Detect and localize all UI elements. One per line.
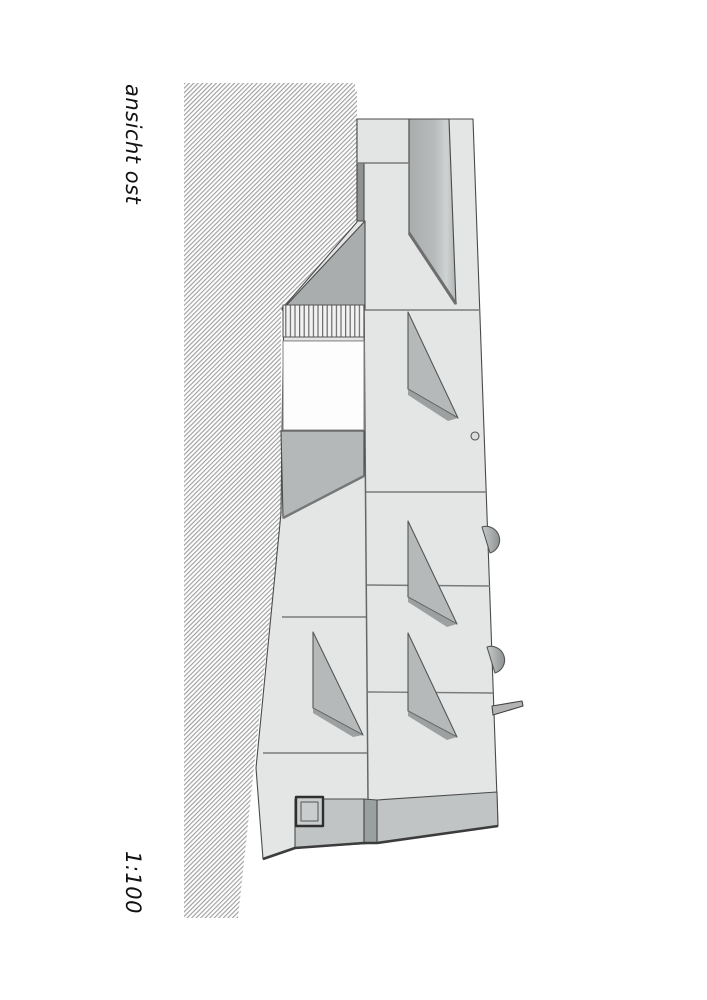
- terrain-edge-shadow-strip: [357, 163, 364, 221]
- basement-window-frame: [296, 797, 323, 826]
- loggia-opening: [283, 341, 364, 430]
- facade-top-panel: [357, 119, 409, 163]
- door-handle: [471, 432, 479, 440]
- elevation-canvas: [0, 0, 707, 1000]
- elevation-drawing-page: ansicht ost 1:100: [0, 0, 707, 1000]
- protruding-pole: [492, 701, 523, 715]
- plinth-downpipe-strip: [364, 799, 377, 843]
- railing-band: [283, 305, 364, 337]
